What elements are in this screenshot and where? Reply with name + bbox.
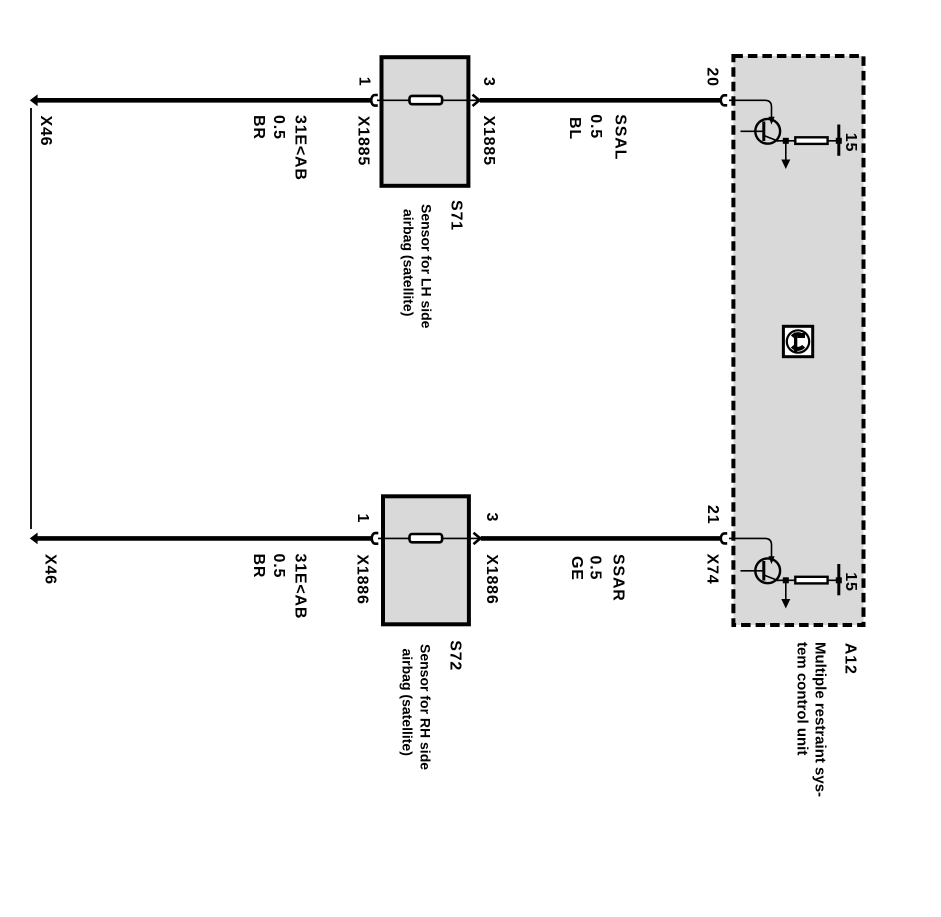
svg-text:SSAL: SSAL (612, 114, 629, 160)
svg-text:X46: X46 (37, 116, 54, 147)
svg-text:SSAR: SSAR (610, 554, 627, 602)
svg-text:X1886: X1886 (354, 554, 371, 604)
svg-text:X1885: X1885 (355, 116, 372, 166)
svg-text:GE: GE (568, 556, 585, 581)
svg-text:Sensor for RH side: Sensor for RH side (418, 644, 434, 770)
svg-text:Sensor for LH side: Sensor for LH side (419, 204, 435, 329)
svg-text:airbag (satellite): airbag (satellite) (400, 649, 416, 756)
svg-text:3: 3 (480, 77, 497, 87)
svg-text:S72: S72 (447, 640, 464, 671)
svg-text:31E<AB: 31E<AB (292, 554, 309, 620)
svg-text:BR: BR (250, 115, 267, 140)
svg-text:3: 3 (483, 513, 500, 523)
svg-text:X74: X74 (704, 554, 721, 585)
svg-text:tem control unit: tem control unit (794, 642, 811, 755)
svg-text:A12: A12 (842, 643, 859, 675)
svg-text:airbag (satellite): airbag (satellite) (401, 209, 417, 316)
svg-text:20: 20 (704, 67, 721, 86)
svg-text:X1885: X1885 (480, 116, 497, 166)
svg-text:BL: BL (566, 117, 583, 140)
svg-text:Multiple restraint sys-: Multiple restraint sys- (812, 642, 829, 797)
svg-text:0.5: 0.5 (270, 115, 287, 140)
svg-text:X1886: X1886 (483, 554, 500, 604)
svg-text:21: 21 (704, 505, 721, 524)
svg-text:1: 1 (354, 514, 371, 524)
svg-text:1: 1 (356, 77, 373, 87)
svg-text:X46: X46 (42, 554, 59, 585)
svg-text:31E<AB: 31E<AB (292, 115, 309, 181)
svg-text:15: 15 (842, 572, 859, 591)
svg-text:0.5: 0.5 (270, 554, 287, 579)
svg-text:15: 15 (842, 133, 859, 152)
svg-text:0.5: 0.5 (587, 556, 604, 581)
svg-text:0.5: 0.5 (587, 114, 604, 139)
svg-text:BR: BR (250, 554, 267, 579)
svg-text:S71: S71 (448, 200, 465, 231)
